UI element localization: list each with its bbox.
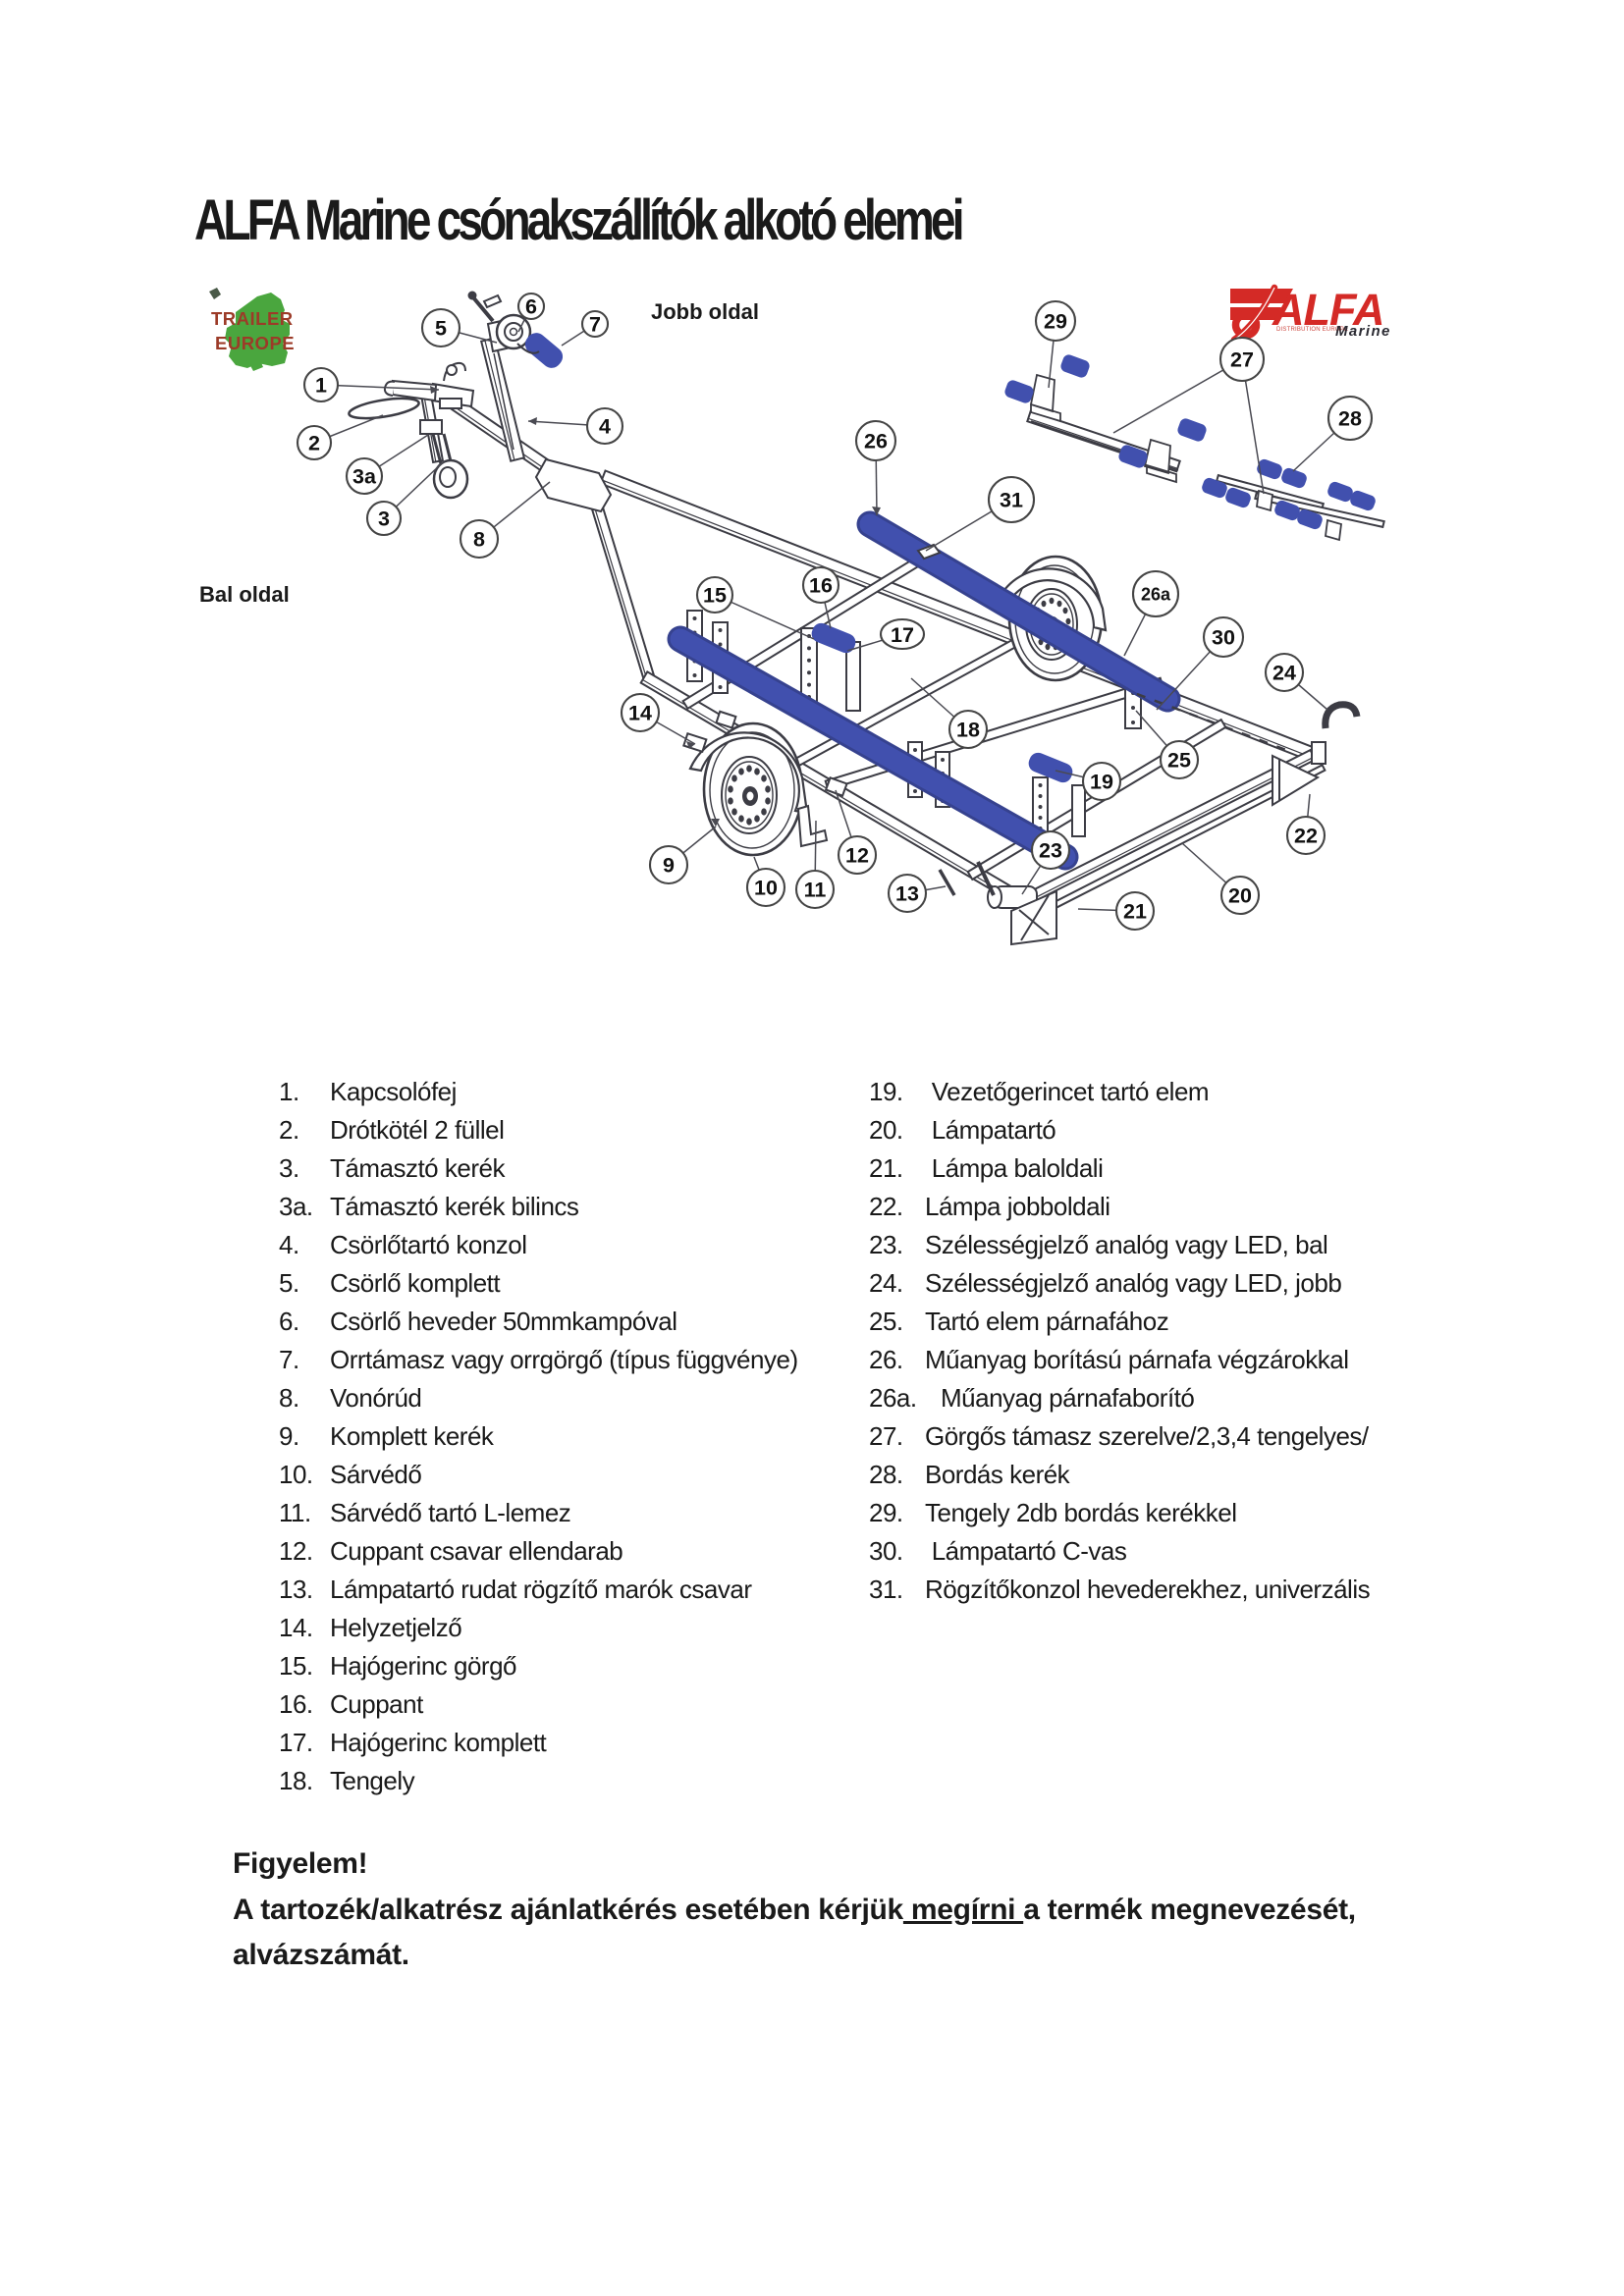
svg-text:21: 21 [1123,900,1147,924]
svg-text:3a: 3a [352,465,377,489]
svg-text:19: 19 [1090,771,1113,794]
svg-text:Jobb oldal: Jobb oldal [651,299,759,324]
svg-text:Bal oldal: Bal oldal [199,582,290,607]
svg-text:9: 9 [663,854,675,878]
svg-text:6: 6 [525,295,537,319]
svg-text:4: 4 [599,415,611,439]
svg-text:10: 10 [754,877,778,900]
svg-text:2: 2 [308,432,320,455]
svg-text:14: 14 [628,702,652,725]
svg-text:29: 29 [1044,310,1067,334]
svg-text:13: 13 [895,882,919,906]
svg-text:26a: 26a [1141,584,1171,604]
svg-text:15: 15 [703,584,727,608]
svg-text:1: 1 [315,374,327,398]
svg-text:20: 20 [1228,884,1252,908]
svg-text:23: 23 [1039,839,1062,863]
svg-text:12: 12 [845,844,869,868]
svg-text:28: 28 [1338,407,1362,431]
svg-text:16: 16 [809,574,833,598]
svg-text:31: 31 [1000,489,1023,512]
svg-text:5: 5 [435,317,447,341]
svg-text:22: 22 [1294,825,1318,848]
svg-text:25: 25 [1167,749,1191,773]
svg-text:7: 7 [589,313,601,337]
svg-text:11: 11 [804,879,827,902]
svg-text:26: 26 [864,430,888,454]
svg-text:18: 18 [956,719,980,742]
svg-text:Marine: Marine [1335,323,1391,340]
svg-text:27: 27 [1230,348,1254,372]
svg-text:17: 17 [891,623,914,647]
svg-text:3: 3 [378,507,390,531]
svg-text:8: 8 [473,528,485,552]
svg-text:24: 24 [1272,662,1296,685]
svg-text:30: 30 [1212,626,1235,650]
svg-text:EUROPE: EUROPE [215,333,295,353]
svg-text:TRAILER: TRAILER [211,308,294,329]
